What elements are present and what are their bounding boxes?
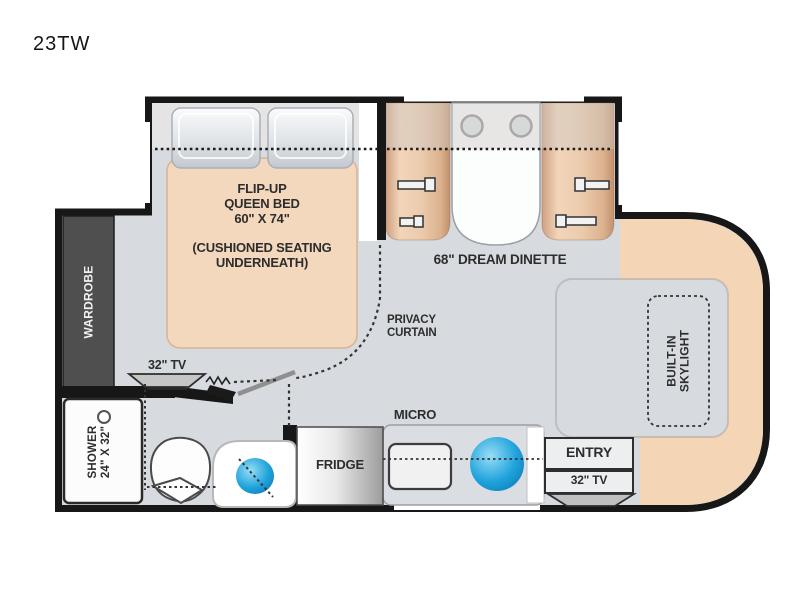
window <box>619 122 624 205</box>
bed-label: FLIP-UP QUEEN BED 60" X 74" <box>167 181 357 226</box>
dinette-overhead-zone <box>386 103 615 149</box>
micro-label: MICRO <box>375 407 455 422</box>
bed-side-panel <box>359 103 377 241</box>
kitchen-sink-icon <box>470 437 524 491</box>
wardrobe-label: WARDROBE <box>82 266 95 339</box>
fridge-label: FRIDGE <box>297 457 383 472</box>
divider-wall <box>377 97 386 240</box>
dinette-label: 68" DREAM DINETTE <box>400 252 600 268</box>
skylight-label: BUILT-IN SKYLIGHT <box>666 330 693 392</box>
entry-label: ENTRY <box>545 444 633 460</box>
shower-label: SHOWER 24" X 32" <box>87 426 113 479</box>
privacy-curtain-label: PRIVACY CURTAIN <box>387 314 457 341</box>
pillow-left-icon <box>172 108 260 168</box>
bed-sub-label: (CUSHIONED SEATING UNDERNEATH) <box>157 240 367 270</box>
pillow-right-icon <box>268 108 353 168</box>
shower-head-icon <box>98 411 110 423</box>
window <box>404 96 584 102</box>
counter-end-panel <box>527 427 544 503</box>
toilet-icon <box>151 438 210 503</box>
floorplan-page: 23TW <box>0 0 800 600</box>
microwave-icon <box>389 444 451 489</box>
window <box>145 122 150 203</box>
cockpit-floor <box>556 279 728 437</box>
living-tv-label: 32" TV <box>545 474 633 488</box>
bedroom-tv-label: 32" TV <box>107 358 227 373</box>
floorplan-drawing <box>0 0 800 600</box>
